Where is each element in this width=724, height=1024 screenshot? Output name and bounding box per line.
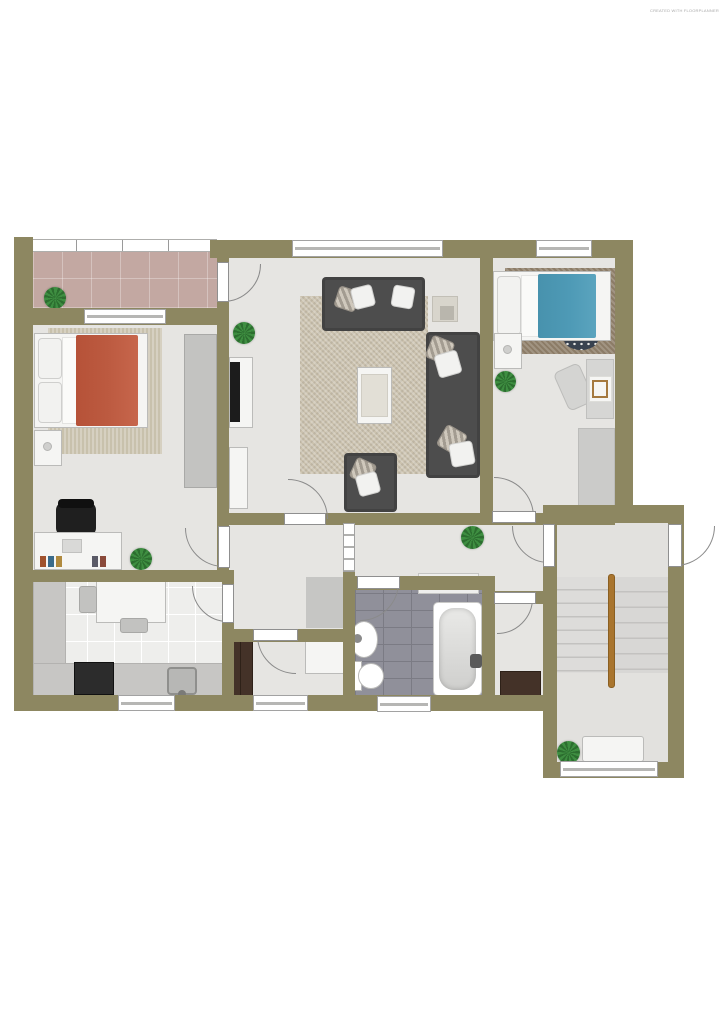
bed-blue-blanket	[538, 274, 596, 338]
window-stairwell	[560, 761, 658, 777]
window-bedroom1	[84, 309, 166, 324]
bathtub-faucet	[470, 654, 482, 668]
tv	[230, 362, 240, 422]
bed-sheet-fold	[521, 275, 539, 337]
laptop	[62, 539, 82, 553]
window-bedroom2	[536, 240, 592, 257]
book	[92, 556, 98, 567]
wall	[343, 585, 355, 711]
stairs-flight-left	[557, 577, 609, 673]
cabinet	[229, 447, 248, 509]
desk-chair-wood	[592, 380, 608, 398]
wc-dresser	[500, 671, 541, 696]
window-storage-room	[253, 695, 308, 711]
door-frame-living	[284, 513, 326, 525]
wall	[480, 240, 493, 523]
dining-table	[96, 581, 166, 623]
bedroom2-plant	[495, 371, 516, 392]
window-bathroom	[377, 696, 431, 712]
door-frame-bedroom1	[218, 526, 230, 568]
door-frame-balcony	[217, 262, 229, 302]
door-frame-entry	[668, 524, 682, 567]
bedroom1-plant	[130, 548, 152, 570]
dining-chair	[120, 618, 148, 633]
door-frame-bathroom	[357, 576, 400, 589]
glazed-partition	[343, 523, 355, 572]
dining-chair	[79, 586, 97, 613]
stairs-handrail	[608, 574, 615, 688]
living-room-plant	[233, 322, 255, 344]
vestibule-doormat	[306, 577, 344, 628]
wall	[543, 505, 684, 523]
door-frame-wc	[494, 592, 536, 604]
bed-pillow	[38, 382, 62, 423]
wall	[615, 240, 633, 523]
sofa-pillow	[390, 284, 415, 309]
kitchen-counter-left	[33, 580, 66, 665]
coffee-table-top	[361, 374, 388, 417]
balcony-plant	[44, 287, 66, 309]
wardrobe-door-split	[240, 637, 241, 697]
window-kitchen	[118, 695, 175, 711]
sofa-pillow	[448, 440, 476, 468]
floor-plan: CREATED WITH FLOORPLANNER	[0, 0, 724, 1024]
bed-pillow	[497, 276, 521, 335]
window-living-room	[292, 240, 443, 257]
wall	[14, 570, 234, 582]
door-frame-stairwell	[543, 524, 555, 567]
stairwell-bench	[582, 736, 644, 762]
door-frame-storage	[253, 629, 298, 641]
balcony-railing	[30, 239, 217, 252]
nightstand-lamp	[43, 442, 52, 451]
bedroom1-wardrobe	[184, 334, 217, 488]
door-frame-kitchen	[222, 584, 234, 623]
side-table-tray	[440, 306, 454, 320]
watermark-text: CREATED WITH FLOORPLANNER	[650, 8, 718, 13]
office-chair-backrest	[58, 499, 94, 508]
hallway-plant	[461, 526, 484, 549]
toilet-bowl	[358, 663, 384, 689]
bed-red-blanket	[76, 335, 138, 426]
book	[100, 556, 106, 567]
bedroom2-gray-rug	[578, 428, 615, 508]
bathtub-basin	[439, 608, 476, 690]
book	[56, 556, 62, 567]
stove	[74, 662, 114, 695]
book	[40, 556, 46, 567]
nightstand-lamp	[503, 345, 512, 354]
book	[48, 556, 54, 567]
stairs-flight-right	[614, 577, 668, 673]
bed-pillow	[38, 338, 62, 379]
door-frame-bedroom2	[492, 511, 536, 523]
